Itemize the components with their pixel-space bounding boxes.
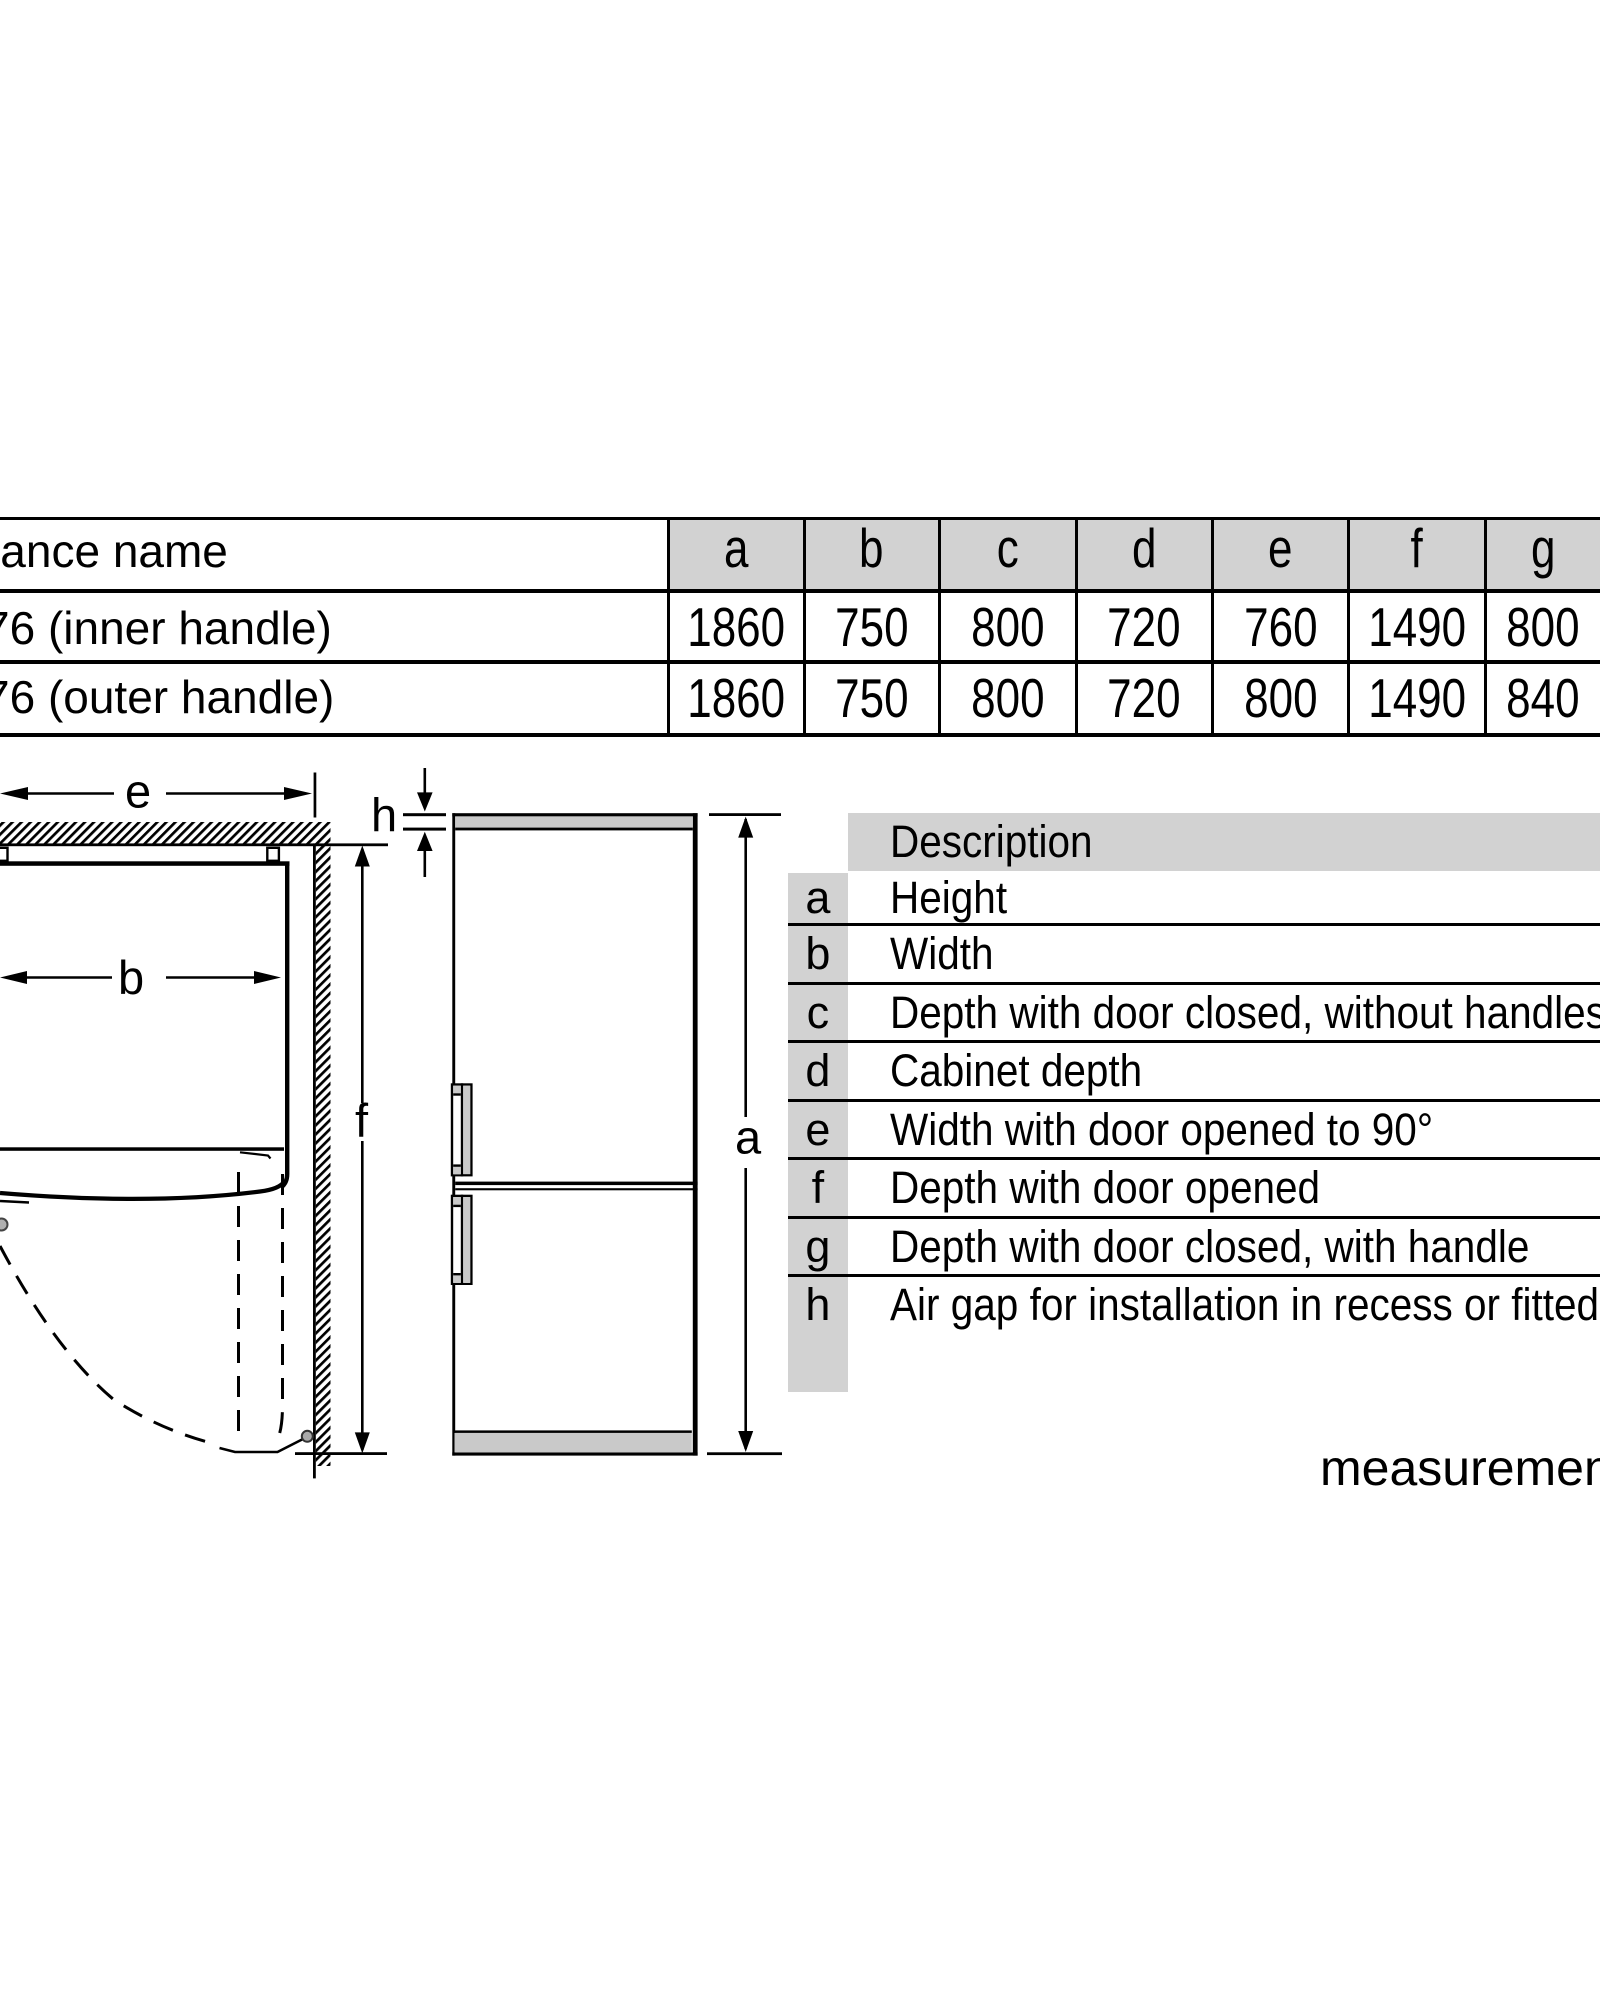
svg-text:h: h: [371, 789, 397, 842]
svg-text:e: e: [125, 765, 151, 818]
svg-text:f: f: [355, 1094, 369, 1147]
svg-text:b: b: [118, 951, 144, 1004]
svg-text:a: a: [735, 1111, 762, 1164]
